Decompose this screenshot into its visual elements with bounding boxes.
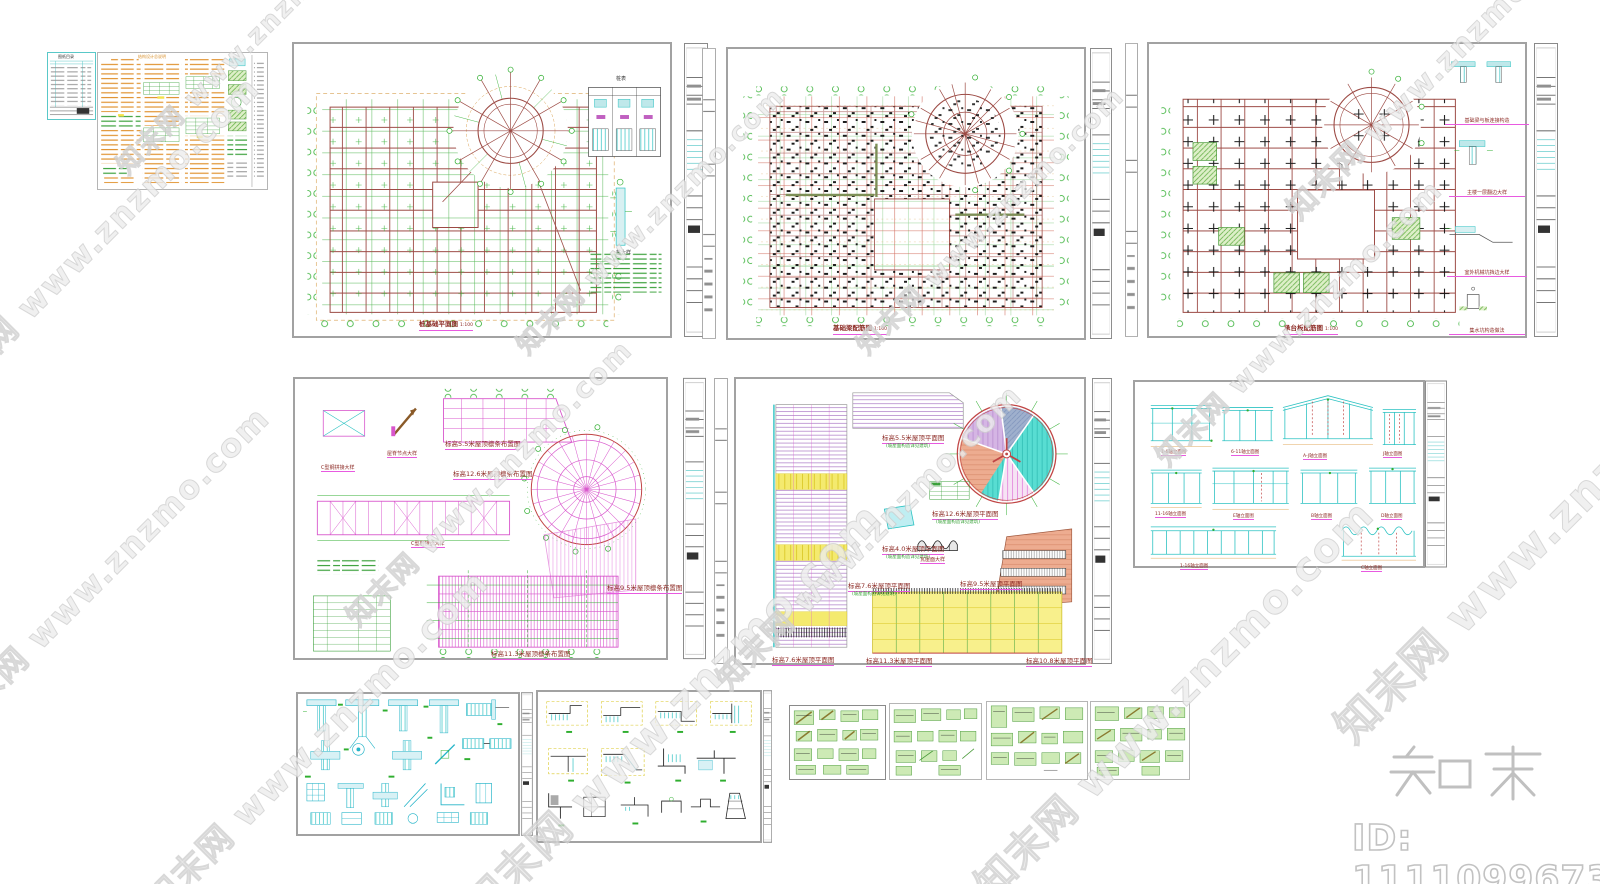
roof-plans-drawing: [736, 379, 1084, 663]
watermark: 知末网 www.znzmo.com: [0, 394, 279, 739]
connection-details-drawing: [790, 706, 885, 779]
frame-elevations-drawing: [1135, 382, 1423, 566]
sheet-steel-column-details: [296, 692, 520, 836]
purlin-schedule: [313, 596, 390, 651]
notes-columns: [101, 58, 224, 183]
title-block-strip: [1425, 380, 1447, 568]
detail-caption: 主楼一层翻边大样: [1449, 190, 1525, 197]
sheet-frame-elevations: 1-6轴立面图 6-11轴立面图 A-J轴立面图 J轴立面图 11-16轴立面图…: [1133, 380, 1425, 568]
sheet-connection-details-2: [889, 703, 982, 780]
drawing-title: 桩基础平面图1:100: [419, 321, 473, 331]
elevation-caption: 11-16轴立面图: [1155, 512, 1186, 518]
pile-detail-caption: 桩大样: [616, 250, 631, 256]
index-sheet-title: 图纸目录: [58, 54, 74, 60]
pile-plan-drawing: [294, 44, 670, 336]
sheet-connection-details-4: [1090, 701, 1190, 780]
base-details: [307, 783, 492, 824]
sheet-structural-notes: 结构设计总说明: [97, 52, 268, 190]
sheet-pile-cap-slab-plan: 基础梁与板连接构造 主楼一层翻边大样 室外机械坑挡边大样 集水坑构造做法 承台板…: [1147, 42, 1527, 338]
drawing-title: 基础梁配筋图1:100: [833, 325, 887, 335]
connection-details-drawing: [987, 702, 1087, 779]
drawing-title: 承台板配筋图1:100: [1284, 325, 1338, 335]
drawing-caption: 标高7.6米屋顶平面图: [772, 657, 834, 666]
sheet-roof-plans: 标高5.5米屋顶平面图 (坡屋面构造详见建筑) 标高12.6米屋顶平面图 (坡屋…: [734, 377, 1086, 665]
title-block-strip: [683, 377, 706, 660]
drawing-caption: 标高4.0米屋顶平面图: [882, 546, 944, 555]
drawing-caption: C型钢拼接大样: [321, 465, 355, 472]
foundation-beam-drawing: [728, 49, 1084, 338]
mini-strip: [714, 377, 728, 665]
drawing-caption: 标高9.5米屋顶平面图: [960, 581, 1022, 590]
drawing-caption: 标高5.5米屋顶平面图: [882, 435, 944, 444]
drawing-caption: 标高11.3米屋顶檩条布置图: [491, 651, 570, 660]
sheet-foundation-beam-plan: 基础梁配筋图1:100: [726, 47, 1086, 340]
notes-sheet-title: 结构设计总说明: [138, 54, 166, 60]
drawing-caption: 标高7.6米屋顶平面图: [848, 583, 910, 592]
frames: [1151, 396, 1416, 557]
title-block-strip: [521, 692, 533, 836]
drawing-subcaption: (坡屋面构造详见建筑): [936, 520, 980, 525]
detail-caption: 集水坑构造做法: [1449, 328, 1525, 335]
bracing-strip: [317, 495, 509, 540]
yellow-roof: [873, 588, 1062, 653]
top-roof-strip: [853, 393, 963, 429]
tile-caption: 瓦屋面大样: [920, 557, 945, 564]
mini-strip: [702, 47, 716, 340]
drawing-caption: 标高12.6米屋顶檩条布置图: [453, 471, 532, 480]
sheet-index-list: 图纸目录: [47, 52, 96, 120]
drawing-caption: C型钢接长大样: [411, 541, 445, 548]
sheet-connection-details-3: [986, 701, 1088, 780]
elevation-caption: A-J轴立面图: [1303, 454, 1327, 460]
elevation-caption: E轴立面图: [1233, 514, 1254, 520]
bottom-purlin-grid: [427, 570, 618, 658]
purlin-layout-drawing: [295, 379, 666, 658]
notes-block: [591, 253, 662, 292]
drawing-caption: 屋脊节点大样: [387, 451, 417, 458]
sheet-eave-details: [536, 690, 762, 843]
drawing-caption: 标高9.5米屋顶檩条布置图: [607, 585, 682, 594]
drawing-subcaption: (坡屋面构造详见建筑): [852, 592, 896, 597]
resource-id: ID: 1111099673: [1352, 818, 1600, 884]
joint-markers: [1171, 398, 1394, 531]
row2: [549, 748, 736, 775]
elevation-caption: C轴立面图: [1361, 566, 1382, 572]
drawing-subcaption: (坡屋面构造详见建筑): [886, 444, 930, 449]
elevation-caption: D轴立面图: [1381, 514, 1402, 520]
structural-notes-drawing: [98, 53, 267, 189]
drawing-caption: 标高11.3米屋顶平面图: [866, 658, 932, 667]
title-block-strip: [763, 690, 772, 843]
title-block-strip: [1534, 42, 1558, 338]
drawing-caption: 标高10.8米屋顶平面图: [1026, 658, 1092, 667]
notes-figures-column: [227, 59, 247, 179]
cad-preview-canvas: 图纸目录 结构设计总说明: [0, 0, 1600, 884]
green-marks: [558, 731, 735, 826]
elevation-caption: B轴立面图: [1311, 514, 1332, 520]
title-block-strip: [1090, 47, 1112, 340]
pile-schedule-table: [589, 87, 661, 156]
site-logo: [1388, 742, 1548, 808]
cross-details: [311, 739, 511, 770]
row1: [547, 702, 752, 725]
legend-table: [930, 482, 969, 500]
sheet-pile-foundation-plan: 桩表 桩大样 桩基础平面图1:100: [292, 42, 672, 338]
row3: [549, 793, 746, 818]
elevation-caption: 1-6轴立面图: [1161, 450, 1186, 456]
title-block-strip: [1092, 377, 1112, 665]
drawing-caption: 标高12.6米屋顶平面图: [932, 511, 998, 520]
elevation-caption: J轴立面图: [1383, 452, 1402, 458]
elevation-caption: 1-16轴立面图: [1180, 564, 1208, 570]
index-list-drawing: [48, 53, 95, 119]
eave-details-drawing: [538, 692, 760, 841]
pile-table-title: 桩表: [616, 76, 626, 82]
elevation-caption: 6-11轴立面图: [1231, 450, 1259, 456]
skylight-panel: [884, 505, 914, 529]
sheet-connection-details-1: [789, 705, 886, 780]
connection-details-drawing: [890, 704, 981, 779]
detail-caption: 室外机械坑挡边大样: [1447, 270, 1527, 277]
drawing-caption: 标高5.5米屋顶檩条布置图: [445, 441, 520, 450]
circular-roof-plan: [946, 393, 1068, 515]
znzmo-logo-glyphs: [1388, 742, 1548, 804]
small-details: [323, 409, 416, 437]
dim-lines: [1151, 445, 1416, 560]
steel-details-drawing: [298, 694, 518, 834]
sheet-purlin-layouts: 标高5.5米屋顶檩条布置图 标高12.6米屋顶檩条布置图 标高9.5米屋顶檩条布…: [293, 377, 668, 660]
left-roof-wing: [774, 405, 847, 648]
mini-strip: [1125, 42, 1138, 338]
roof-strip-plan: [444, 389, 572, 442]
connection-details-drawing: [1091, 702, 1189, 779]
detail-caption: 基础梁与板连接构造: [1445, 118, 1529, 125]
